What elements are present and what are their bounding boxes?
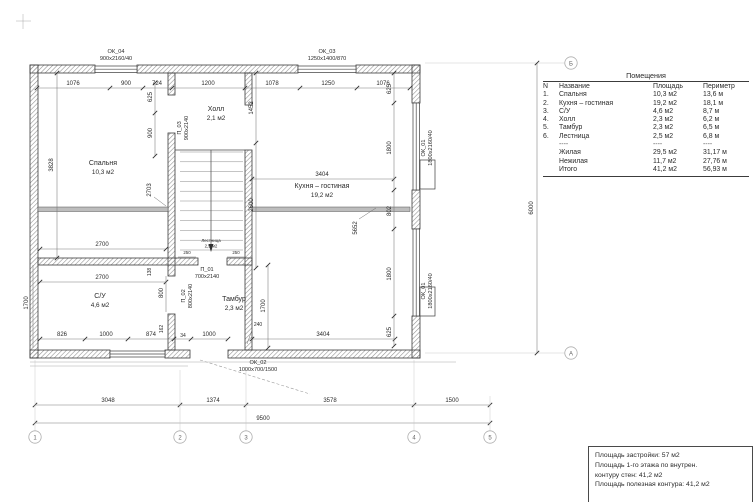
dim-label: 3578 xyxy=(323,398,337,404)
wall-segment xyxy=(30,350,110,358)
cell-num: 1. xyxy=(543,91,559,99)
dim-label: 1200 xyxy=(201,81,215,87)
room-name: Спальня xyxy=(89,160,117,167)
rooms-table: Помещения N Название Площадь Периметр 1.… xyxy=(543,72,749,177)
dim-label: 3828 xyxy=(49,158,55,172)
wall-segment xyxy=(30,65,38,358)
dim-label: 1700 xyxy=(24,296,30,310)
door-label-id: П_01 xyxy=(200,267,213,273)
summary-line: Площадь 1-го этажа по внутрен. xyxy=(595,461,746,471)
cell-name: Кухня – гостиная xyxy=(559,100,653,108)
window-label-id: ОК_02 xyxy=(250,360,267,366)
dim-label: 3404 xyxy=(315,172,329,178)
wall-segment xyxy=(165,350,190,358)
staircase xyxy=(175,150,245,252)
beam-line xyxy=(38,207,168,212)
window-label-id: ОК_04 xyxy=(108,49,125,55)
cell-num: 3. xyxy=(543,108,559,116)
dim-label: 138 xyxy=(147,268,153,277)
wall-segment xyxy=(412,190,420,229)
rooms-table-body: N Название Площадь Периметр 1. Спальня 1… xyxy=(543,81,749,177)
cell-name: Итого xyxy=(559,166,653,174)
window-label-size: 900х2160/40 xyxy=(100,56,132,62)
drawing-sheet: 1076 900 724 1200 1078 1250 1076 826 100… xyxy=(0,0,753,502)
dim-label: 1000 xyxy=(202,332,216,338)
cell-num: 4. xyxy=(543,116,559,124)
cell-num xyxy=(543,141,559,149)
dimension-labels: 1076 900 724 1200 1078 1250 1076 826 100… xyxy=(24,81,535,422)
dim-label: 1452 xyxy=(249,101,255,115)
door-label-size: 900х2140 xyxy=(184,116,190,141)
dim-label: 800 xyxy=(159,287,165,298)
window-label-size: 1250х1400/870 xyxy=(308,56,347,62)
dim-label: 900 xyxy=(121,81,132,87)
dim-label: 240 xyxy=(254,322,263,328)
wall-segment xyxy=(168,73,175,95)
grid-axes: 1 2 3 4 5 Б А xyxy=(29,57,577,443)
window-label-id: ОК_03 xyxy=(319,49,336,55)
cell-name: С/У xyxy=(559,108,653,116)
dim-label: 900 xyxy=(148,127,154,138)
window-symbols xyxy=(30,66,456,394)
cell-perimeter: 31,17 м xyxy=(703,149,749,157)
summary-line: Площадь застройки: 57 м2 xyxy=(595,451,746,461)
wall-segment xyxy=(30,65,95,73)
summary-line: Площадь полезная контура: 41,2 м2 xyxy=(595,480,746,490)
dim-label: 2703 xyxy=(147,183,153,197)
rooms-table-title: Помещения xyxy=(543,72,749,81)
cell-name: Тамбур xyxy=(559,124,653,132)
table-row: 5. Тамбур 2,3 м2 6,5 м xyxy=(543,124,749,132)
summary-line: контуру стен: 41,2 м2 xyxy=(595,471,746,481)
frame-corner-mark xyxy=(16,14,31,29)
dim-label: 874 xyxy=(146,332,157,338)
col-header-perimeter: Периметр xyxy=(703,83,749,91)
cell-name: ---- xyxy=(559,141,653,149)
cell-num: 2. xyxy=(543,100,559,108)
axis-label: Б xyxy=(569,61,573,67)
cell-num xyxy=(543,149,559,157)
cell-perimeter: 56,93 м xyxy=(703,166,749,174)
dim-label: 9500 xyxy=(256,416,270,422)
cell-area: 2,5 м2 xyxy=(653,133,703,141)
wall-segment xyxy=(168,314,175,350)
table-row: 6. Лестница 2,5 м2 6,8 м xyxy=(543,133,749,141)
dim-label: 625 xyxy=(387,83,393,94)
cell-name: Нежилая xyxy=(559,158,653,166)
col-header-name: Название xyxy=(559,83,653,91)
room-name: Холл xyxy=(208,106,225,113)
dim-label: 3404 xyxy=(316,332,330,338)
cell-perimeter: 27,76 м xyxy=(703,158,749,166)
table-row: 3. С/У 4,6 м2 8,7 м xyxy=(543,108,749,116)
dim-label: 1000 xyxy=(99,332,113,338)
wall-segment xyxy=(137,65,298,73)
room-area: 2,5 м2 xyxy=(205,244,218,249)
wall-segment xyxy=(228,350,420,358)
room-area: 4,6 м2 xyxy=(91,302,110,309)
cell-area: 4,6 м2 xyxy=(653,108,703,116)
window-label-size: 1000х700/1500 xyxy=(239,367,278,373)
cell-name: Жилая xyxy=(559,149,653,157)
cell-area: 11,7 м2 xyxy=(653,158,703,166)
axis-label: А xyxy=(569,351,573,357)
cell-perimeter: 6,5 м xyxy=(703,124,749,132)
col-header-area: Площадь xyxy=(653,83,703,91)
dim-label: 250 xyxy=(232,250,240,255)
room-area: 19,2 м2 xyxy=(311,192,334,199)
window-label-id: ОК_01 xyxy=(421,140,427,157)
cell-num: 6. xyxy=(543,133,559,141)
cell-perimeter: 13,6 м xyxy=(703,91,749,99)
cell-perimeter: 6,2 м xyxy=(703,116,749,124)
cell-area: 19,2 м2 xyxy=(653,100,703,108)
dim-label: 802 xyxy=(387,205,393,216)
dim-label: 3048 xyxy=(101,398,115,404)
cell-perimeter: 8,7 м xyxy=(703,108,749,116)
room-area: 2,1 м2 xyxy=(207,115,226,122)
cell-perimeter: 6,8 м xyxy=(703,133,749,141)
dim-label: 250 xyxy=(183,250,191,255)
window-label-size: 1800х2160/40 xyxy=(428,130,434,165)
cell-num xyxy=(543,158,559,166)
cell-perimeter: 18,1 м xyxy=(703,100,749,108)
door-label-size: 800х2140 xyxy=(188,284,194,309)
window-label-size: 1800х2160/40 xyxy=(428,273,434,308)
room-name: Кухня – гостиная xyxy=(295,183,350,190)
col-header-num: N xyxy=(543,83,559,91)
dim-label: 2700 xyxy=(95,242,109,248)
cell-area: ---- xyxy=(653,141,703,149)
dim-label: 826 xyxy=(57,332,68,338)
table-total-row: Жилая 29,5 м2 31,17 м xyxy=(543,149,749,157)
dim-label: 34 xyxy=(180,333,186,339)
walls xyxy=(30,65,420,358)
table-total-row: Итого 41,2 м2 56,93 м xyxy=(543,166,749,174)
dim-label: 1700 xyxy=(261,299,267,313)
cell-area: 10,3 м2 xyxy=(653,91,703,99)
wall-segment xyxy=(168,133,175,276)
room-name: Тамбур xyxy=(222,295,246,303)
room-area: 10,3 м2 xyxy=(92,169,115,176)
dim-label: 162 xyxy=(159,325,165,334)
dim-label: 1374 xyxy=(206,398,220,404)
cell-area: 29,5 м2 xyxy=(653,149,703,157)
dimension-lines xyxy=(33,61,566,428)
dim-label: 1250 xyxy=(321,81,335,87)
dim-label: 1500 xyxy=(445,398,459,404)
dim-label: 1800 xyxy=(387,267,393,281)
cell-name: Спальня xyxy=(559,91,653,99)
room-name: Лестница xyxy=(201,238,221,243)
door-label-size: 700х2140 xyxy=(195,274,220,280)
dim-label: 5652 xyxy=(353,221,359,235)
cell-area: 2,3 м2 xyxy=(653,124,703,132)
cell-num: 5. xyxy=(543,124,559,132)
wall-segment xyxy=(245,73,252,105)
summary-box: Площадь застройки: 57 м2 Площадь 1-го эт… xyxy=(588,446,753,502)
wall-segment xyxy=(38,258,198,265)
dim-label: 1078 xyxy=(265,81,279,87)
room-area: 2,3 м2 xyxy=(225,305,244,312)
dim-label: 6000 xyxy=(529,201,535,215)
dim-label: 1800 xyxy=(387,141,393,155)
wall-segment xyxy=(227,258,252,265)
cell-name: Лестница xyxy=(559,133,653,141)
room-name: С/У xyxy=(94,293,106,300)
dim-label: 2700 xyxy=(95,275,109,281)
window-label-id: ОК_01 xyxy=(421,283,427,300)
table-row: 2. Кухня – гостиная 19,2 м2 18,1 м xyxy=(543,100,749,108)
table-header-row: N Название Площадь Периметр xyxy=(543,83,749,91)
dim-label: 724 xyxy=(152,81,163,87)
door-label-id: П_02 xyxy=(181,289,187,302)
cell-num xyxy=(543,166,559,174)
dim-label: 625 xyxy=(387,326,393,337)
table-row: 1. Спальня 10,3 м2 13,6 м xyxy=(543,91,749,99)
dim-label: 2600 xyxy=(249,198,255,212)
dim-label: 625 xyxy=(148,91,154,102)
dim-label: 1076 xyxy=(66,81,80,87)
wall-segment xyxy=(356,65,420,73)
leader-line xyxy=(154,197,166,206)
table-separator-row: ---- ---- ---- xyxy=(543,141,749,149)
cell-area: 41,2 м2 xyxy=(653,166,703,174)
wall-segment xyxy=(412,65,420,103)
table-total-row: Нежилая 11,7 м2 27,76 м xyxy=(543,158,749,166)
door-label-id: П_03 xyxy=(177,121,183,134)
cell-perimeter: ---- xyxy=(703,141,749,149)
cell-area: 2,3 м2 xyxy=(653,116,703,124)
